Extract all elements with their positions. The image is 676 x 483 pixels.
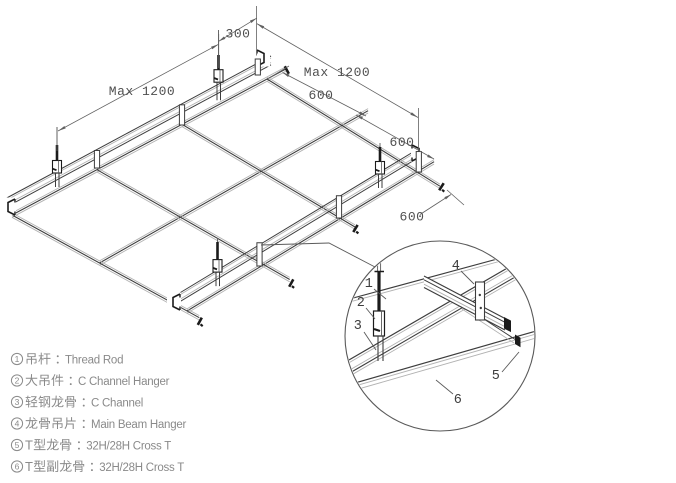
svg-text:1: 1 xyxy=(365,277,374,292)
svg-text:600: 600 xyxy=(390,135,415,150)
svg-text:Main Beam Hanger: Main Beam Hanger xyxy=(91,419,186,431)
svg-text:5: 5 xyxy=(492,369,501,384)
svg-text:1: 1 xyxy=(15,354,20,364)
svg-text:6: 6 xyxy=(454,393,463,408)
svg-text:2: 2 xyxy=(15,376,20,386)
svg-text:600: 600 xyxy=(309,88,334,103)
svg-text:Max 1200: Max 1200 xyxy=(109,84,175,99)
svg-text:4: 4 xyxy=(452,259,461,274)
svg-text:6: 6 xyxy=(15,462,20,472)
svg-text:32H/28H Cross T: 32H/28H Cross T xyxy=(86,441,171,453)
svg-text:C Channel: C Channel xyxy=(91,398,143,410)
svg-text:32H/28H Cross T: 32H/28H Cross T xyxy=(99,462,184,474)
svg-text:4: 4 xyxy=(15,419,20,429)
svg-text:T: T xyxy=(25,459,33,474)
svg-text:5: 5 xyxy=(15,440,20,450)
svg-text:600: 600 xyxy=(400,210,425,225)
svg-text:300: 300 xyxy=(226,27,251,42)
svg-text:3: 3 xyxy=(354,319,363,334)
svg-text:2: 2 xyxy=(357,296,366,311)
svg-text:3: 3 xyxy=(15,397,20,407)
svg-text:T: T xyxy=(25,438,33,453)
svg-text:Thread Rod: Thread Rod xyxy=(65,355,123,367)
svg-text:C Channel Hanger: C Channel Hanger xyxy=(78,376,170,388)
svg-text:Max 1200: Max 1200 xyxy=(304,65,370,80)
